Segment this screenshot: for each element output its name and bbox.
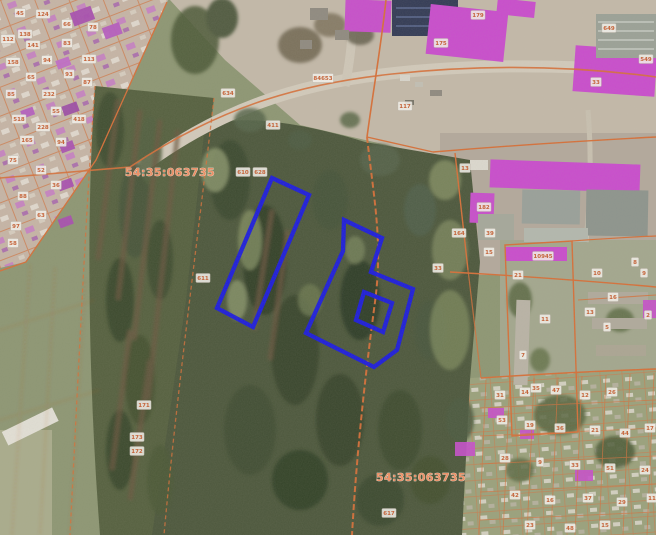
map-viewport[interactable]: 4512466781381121418315894113659385232875… bbox=[0, 0, 656, 535]
satellite-map[interactable]: 4512466781381121418315894113659385232875… bbox=[0, 0, 656, 535]
photo-grain-overlay bbox=[0, 0, 656, 535]
